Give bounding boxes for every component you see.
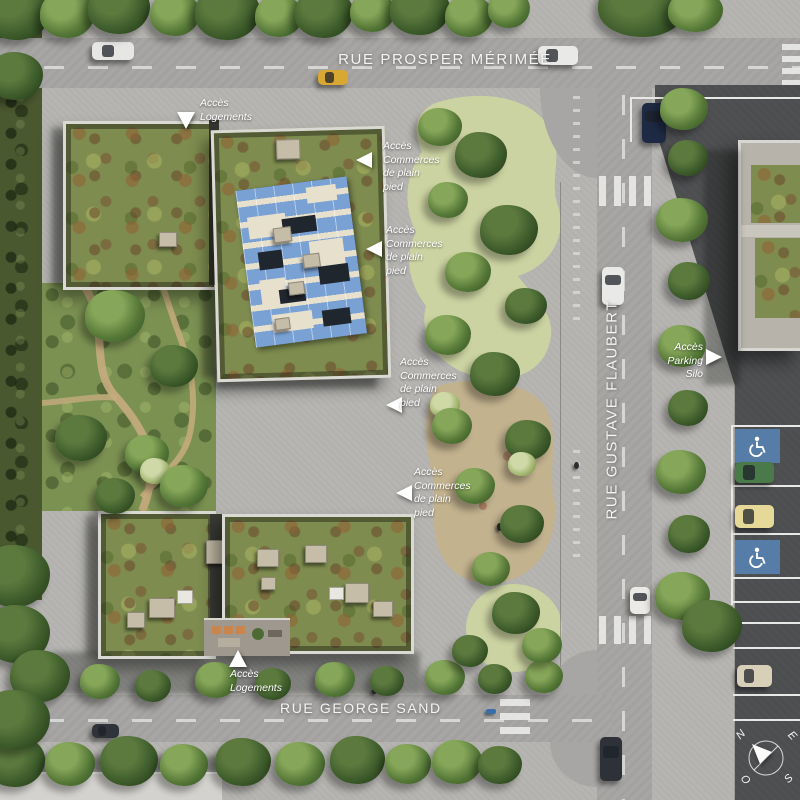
- roof-unit: [257, 549, 279, 567]
- shrub: [425, 315, 471, 355]
- tree: [40, 0, 95, 38]
- roof-walkway: [306, 184, 338, 204]
- parking-line: [733, 647, 800, 649]
- bike-racks: [573, 96, 580, 326]
- tree: [275, 742, 325, 786]
- roof-void: [322, 307, 352, 327]
- roof-unit: [261, 577, 276, 590]
- label-acces-logements-nord: Accès Logements: [200, 97, 252, 124]
- parking-line: [630, 97, 632, 142]
- crosswalk-flaubert-south: [599, 616, 651, 644]
- arrow-left-icon: [366, 241, 382, 257]
- parking-silo-building: [738, 140, 800, 351]
- tree: [0, 545, 50, 607]
- tree: [350, 0, 395, 32]
- shrub: [455, 132, 507, 178]
- parking-line: [733, 425, 800, 427]
- compass-east: E: [785, 729, 798, 743]
- car: [318, 70, 348, 85]
- roof-unit: [273, 226, 293, 243]
- crosswalk-flaubert-north: [599, 176, 651, 206]
- compass-south: S: [782, 772, 796, 786]
- terrace-bench: [268, 630, 282, 637]
- wheelchair-icon: [746, 435, 768, 457]
- tree: [385, 744, 431, 784]
- arrow-down-icon: [177, 112, 195, 129]
- silo-green-roof: [751, 165, 800, 223]
- tree: [315, 662, 355, 697]
- arrow-up-icon: [229, 650, 247, 667]
- parking-line: [733, 601, 800, 603]
- label-acces-commerces-3: Accès Commerces de plain pied: [400, 356, 457, 411]
- parking-line: [630, 97, 800, 99]
- tree: [390, 0, 450, 35]
- shrub: [480, 205, 538, 255]
- solar-panel-roof: [235, 176, 367, 347]
- passage: [210, 514, 222, 624]
- roof-unit: [373, 601, 393, 617]
- shrub: [470, 352, 520, 396]
- roof-unit: [305, 545, 327, 563]
- tree: [160, 465, 208, 507]
- parking-line: [733, 622, 800, 624]
- tree: [445, 0, 493, 37]
- roof-unit: [159, 232, 177, 247]
- tree: [668, 515, 710, 553]
- shrub: [445, 252, 491, 292]
- junction-curve: [550, 742, 597, 787]
- arrow-left-icon: [396, 485, 412, 501]
- compass-north: N: [734, 728, 748, 742]
- roof-unit: [149, 598, 175, 618]
- compass-west: O: [738, 773, 753, 788]
- parking-line: [733, 577, 800, 579]
- tree: [478, 746, 522, 784]
- terrace-table: [218, 638, 240, 647]
- cyclist: [486, 709, 496, 714]
- tree: [85, 290, 145, 342]
- tree: [682, 600, 742, 652]
- pedestrian: [574, 462, 579, 469]
- roof-void: [258, 249, 284, 270]
- flowering-shrub: [508, 452, 536, 476]
- arrow-right-icon: [706, 349, 722, 365]
- tree: [150, 0, 200, 36]
- silo-green-roof: [755, 238, 800, 318]
- tree: [330, 736, 385, 784]
- crosswalk-george-sand: [500, 699, 530, 739]
- tree: [45, 742, 95, 786]
- site-plan: RUE PROSPER MÉRIMÉE RUE GUSTAVE FLAUBERT…: [0, 0, 800, 800]
- shrub: [432, 408, 472, 444]
- building-a-roof: [63, 121, 217, 290]
- tree: [160, 744, 208, 786]
- terrace-table: [212, 626, 221, 634]
- skylight: [177, 590, 193, 604]
- building-c-west-roof: [98, 511, 216, 659]
- tree: [668, 0, 723, 32]
- street-name-george-sand: RUE GEORGE SAND: [280, 700, 440, 716]
- car: [92, 724, 119, 738]
- arrow-left-icon: [356, 152, 372, 168]
- roof-unit: [302, 253, 321, 269]
- tree: [668, 390, 708, 426]
- crosswalk-top-right: [782, 44, 800, 86]
- tree: [215, 738, 271, 786]
- car: [600, 737, 622, 781]
- tree: [488, 0, 530, 28]
- tree: [668, 140, 708, 176]
- terrace-table: [236, 626, 245, 634]
- terrace-table: [224, 626, 233, 634]
- tree: [432, 740, 482, 784]
- shrub: [492, 592, 540, 634]
- tree: [525, 660, 563, 693]
- shrub: [452, 635, 488, 667]
- label-acces-logements-sud: Accès Logements: [230, 668, 282, 695]
- roof-access: [276, 139, 301, 160]
- tree: [150, 345, 198, 387]
- label-acces-commerces-1: Accès Commerces de plain pied: [383, 140, 440, 195]
- terrace-planter: [252, 628, 264, 640]
- tree: [55, 415, 107, 461]
- shrub: [500, 505, 544, 543]
- label-acces-commerces-2: Accès Commerces de plain pied: [386, 224, 443, 279]
- parking-line: [733, 533, 800, 535]
- tree: [80, 664, 120, 699]
- tree: [656, 198, 708, 242]
- label-acces-parking-silo: Accès Parking Silo: [648, 341, 703, 382]
- parking-line: [733, 694, 800, 696]
- car: [735, 505, 774, 528]
- tree: [100, 736, 158, 786]
- tree: [668, 262, 710, 300]
- tree: [295, 0, 353, 38]
- roof-terrace: [204, 618, 290, 656]
- tree: [478, 664, 512, 694]
- tree: [425, 660, 465, 695]
- tree: [660, 88, 708, 130]
- tree: [656, 450, 706, 494]
- shrub: [472, 552, 510, 586]
- skylight: [329, 587, 344, 600]
- tree: [88, 0, 150, 34]
- street-name-gustave-flaubert: RUE GUSTAVE FLAUBERT: [604, 320, 621, 520]
- handicap-bay: [735, 429, 780, 463]
- tree: [370, 666, 404, 696]
- car: [630, 587, 650, 614]
- shrub: [505, 288, 547, 324]
- label-acces-commerces-4: Accès Commerces de plain pied: [414, 466, 471, 521]
- curb: [560, 182, 561, 692]
- car: [92, 42, 134, 60]
- parking-line: [733, 719, 800, 721]
- car: [735, 462, 774, 483]
- street-name-prosper-merimee: RUE PROSPER MÉRIMÉE: [330, 51, 560, 68]
- compass-rose: N E S O: [730, 722, 798, 790]
- roof-unit: [274, 317, 290, 331]
- roof-unit: [127, 612, 145, 628]
- tree: [95, 478, 135, 514]
- roof-unit: [288, 281, 306, 296]
- wheelchair-icon: [746, 546, 768, 568]
- handicap-bay: [735, 540, 780, 574]
- tree: [135, 670, 171, 702]
- parking-line: [733, 485, 800, 487]
- car: [737, 665, 772, 687]
- roof-unit: [345, 583, 369, 603]
- roof-void: [318, 263, 350, 285]
- shrub: [522, 628, 562, 663]
- tree: [195, 0, 260, 40]
- silo-walkway: [741, 225, 800, 237]
